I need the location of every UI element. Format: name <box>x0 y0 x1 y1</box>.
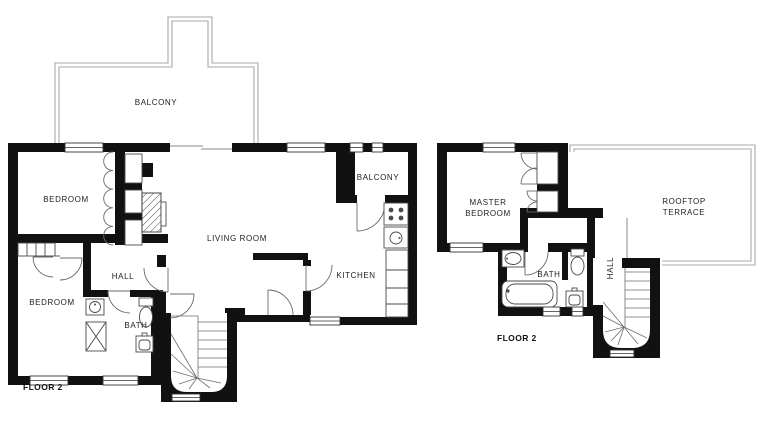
room-label-hall: HALL <box>606 257 615 279</box>
room-label-hall: HALL <box>112 272 134 281</box>
stove <box>384 203 408 225</box>
room-label-terrace-line1: ROOFTOP <box>662 197 706 206</box>
bidet <box>136 333 153 352</box>
shower <box>86 322 106 351</box>
sink <box>86 299 104 315</box>
stair-window <box>610 350 634 357</box>
sliding-door <box>170 146 232 149</box>
wardrobe <box>18 243 82 280</box>
sink <box>502 250 524 267</box>
room-label-balcony-top: BALCONY <box>135 98 177 107</box>
floor-plan-right: MASTER BEDROOM ROOFTOP TERRACE BATH HALL… <box>437 143 755 358</box>
floor-label-left: FLOOR 2 <box>23 382 63 392</box>
room-label-master-line2: BEDROOM <box>465 209 511 218</box>
room-label-terrace-line2: TERRACE <box>663 208 705 217</box>
room-label-bath: BATH <box>124 321 147 330</box>
room-label-bath: BATH <box>537 270 560 279</box>
room-label-kitchen: KITCHEN <box>336 271 375 280</box>
room-label-bedroom-lower: BEDROOM <box>29 298 75 307</box>
kitchen-fixtures <box>384 203 408 317</box>
counter <box>386 250 408 317</box>
stair-window <box>172 394 200 401</box>
room-label-balcony-right: BALCONY <box>357 173 399 182</box>
door-arc <box>33 257 82 280</box>
floor-plan-drawing: BALCONY BEDROOM BEDROOM HALL BATH LIVING… <box>0 0 768 444</box>
staircase <box>593 258 660 358</box>
toilet <box>571 249 584 275</box>
kitchen-sink <box>384 227 408 248</box>
room-label-living-room: LIVING ROOM <box>207 234 267 243</box>
floor-label-right: FLOOR 2 <box>497 333 537 343</box>
floor-plan-left: BALCONY BEDROOM BEDROOM HALL BATH LIVING… <box>8 17 417 402</box>
closet <box>521 152 558 212</box>
room-label-bedroom-upper: BEDROOM <box>43 195 89 204</box>
balcony-railing <box>55 17 258 143</box>
room-label-master-line1: MASTER <box>470 198 507 207</box>
door-arc <box>521 153 537 212</box>
floor-plan-page: BALCONY BEDROOM BEDROOM HALL BATH LIVING… <box>0 0 768 444</box>
staircase <box>161 313 237 402</box>
chimney <box>142 193 166 232</box>
bathtub <box>502 281 557 307</box>
bidet <box>566 288 583 307</box>
